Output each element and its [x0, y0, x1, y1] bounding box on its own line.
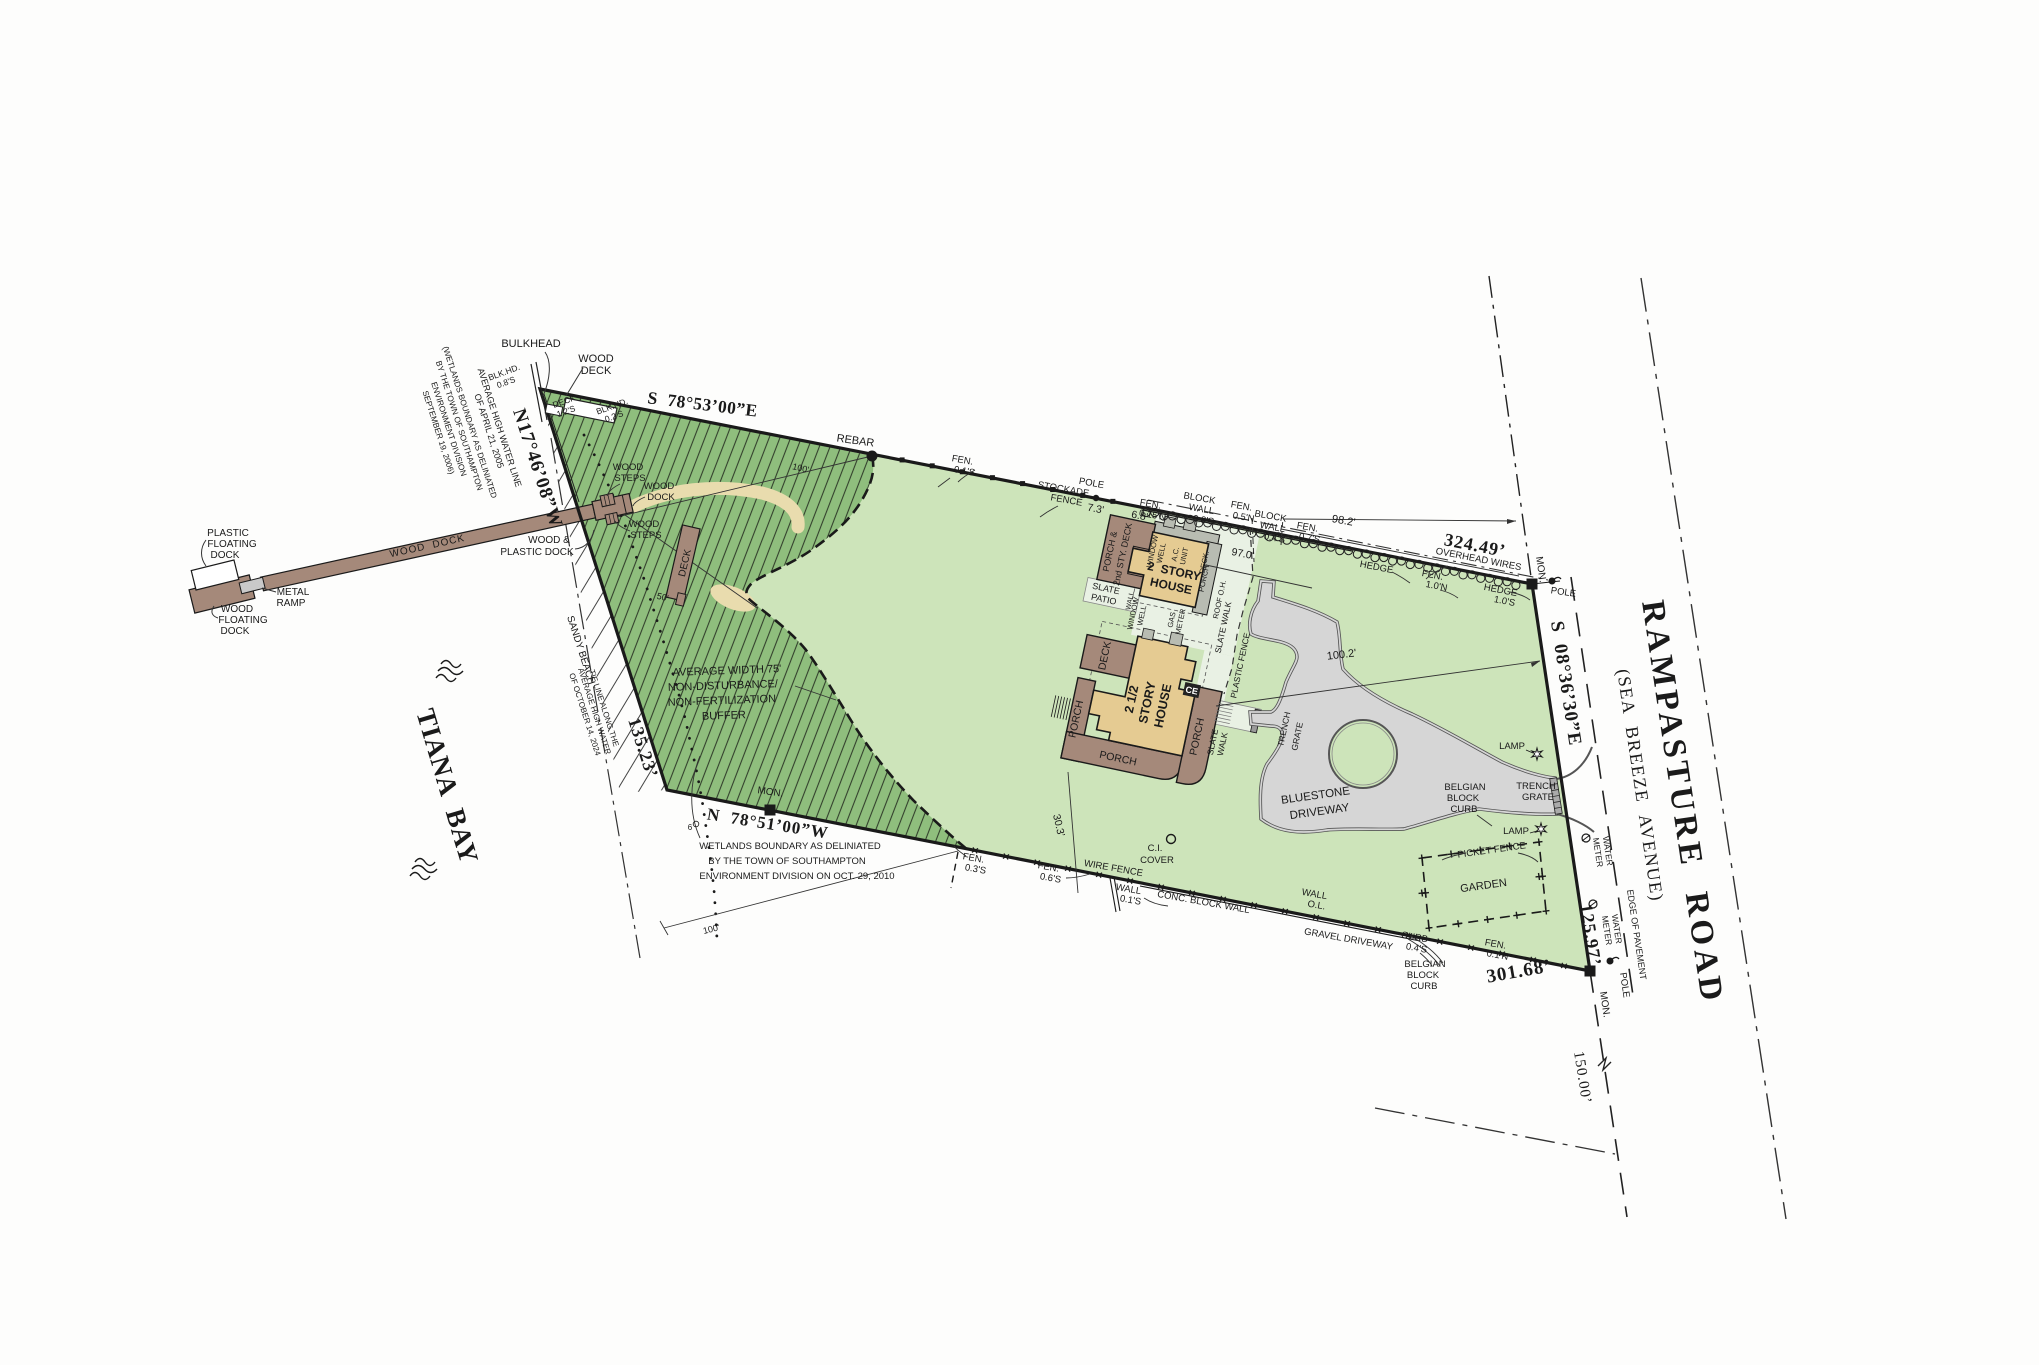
svg-text:DOCK: DOCK	[211, 550, 240, 561]
svg-text:C.I.: C.I.	[1148, 843, 1163, 854]
svg-text:BELGIAN: BELGIAN	[1404, 959, 1445, 970]
svg-text:WOOD: WOOD	[644, 481, 675, 492]
svg-text:COVER: COVER	[1140, 855, 1174, 866]
svg-text:BY THE TOWN OF SOUTHAMPTON: BY THE TOWN OF SOUTHAMPTON	[708, 856, 866, 867]
svg-text:GRATE: GRATE	[1522, 792, 1554, 803]
svg-text:RAMP: RAMP	[277, 598, 306, 609]
svg-text:WETLANDS BOUNDARY AS DELINIATE: WETLANDS BOUNDARY AS DELINIATED	[699, 841, 881, 852]
svg-text:BULKHEAD: BULKHEAD	[501, 338, 560, 350]
svg-text:BLOCK: BLOCK	[1407, 970, 1440, 981]
svg-text:CURB: CURB	[1411, 981, 1438, 992]
svg-text:CURB: CURB	[1451, 804, 1478, 815]
svg-text:WOOD: WOOD	[613, 462, 644, 473]
svg-text:PLASTIC: PLASTIC	[207, 528, 249, 539]
svg-text:LAMP: LAMP	[1499, 741, 1525, 752]
svg-text:FLOATING: FLOATING	[218, 615, 267, 626]
svg-text:WOOD: WOOD	[629, 519, 660, 530]
svg-text:BELGIAN: BELGIAN	[1444, 782, 1485, 793]
svg-text:WOOD: WOOD	[221, 604, 253, 615]
svg-text:WOOD &: WOOD &	[528, 535, 570, 546]
svg-text:TRENCH: TRENCH	[1516, 781, 1556, 792]
svg-text:LAMP: LAMP	[1503, 826, 1529, 837]
svg-text:PLASTIC DOCK: PLASTIC DOCK	[500, 547, 574, 558]
svg-text:DOCK: DOCK	[221, 626, 250, 637]
svg-text:WOOD: WOOD	[578, 353, 613, 365]
svg-text:6: 6	[688, 823, 693, 832]
svg-text:STEPS: STEPS	[630, 530, 661, 541]
svg-text:DECK: DECK	[581, 365, 612, 377]
svg-text:FLOATING: FLOATING	[207, 539, 256, 550]
svg-text:ENVIRONMENT DIVISION ON OCT. 2: ENVIRONMENT DIVISION ON OCT. 29, 2010	[699, 871, 894, 882]
svg-text:BLOCK: BLOCK	[1447, 793, 1480, 804]
svg-text:STEPS: STEPS	[614, 473, 645, 484]
svg-text:DOCK: DOCK	[647, 492, 675, 503]
svg-text:METAL: METAL	[277, 587, 310, 598]
svg-text:BUFFER: BUFFER	[702, 709, 746, 723]
